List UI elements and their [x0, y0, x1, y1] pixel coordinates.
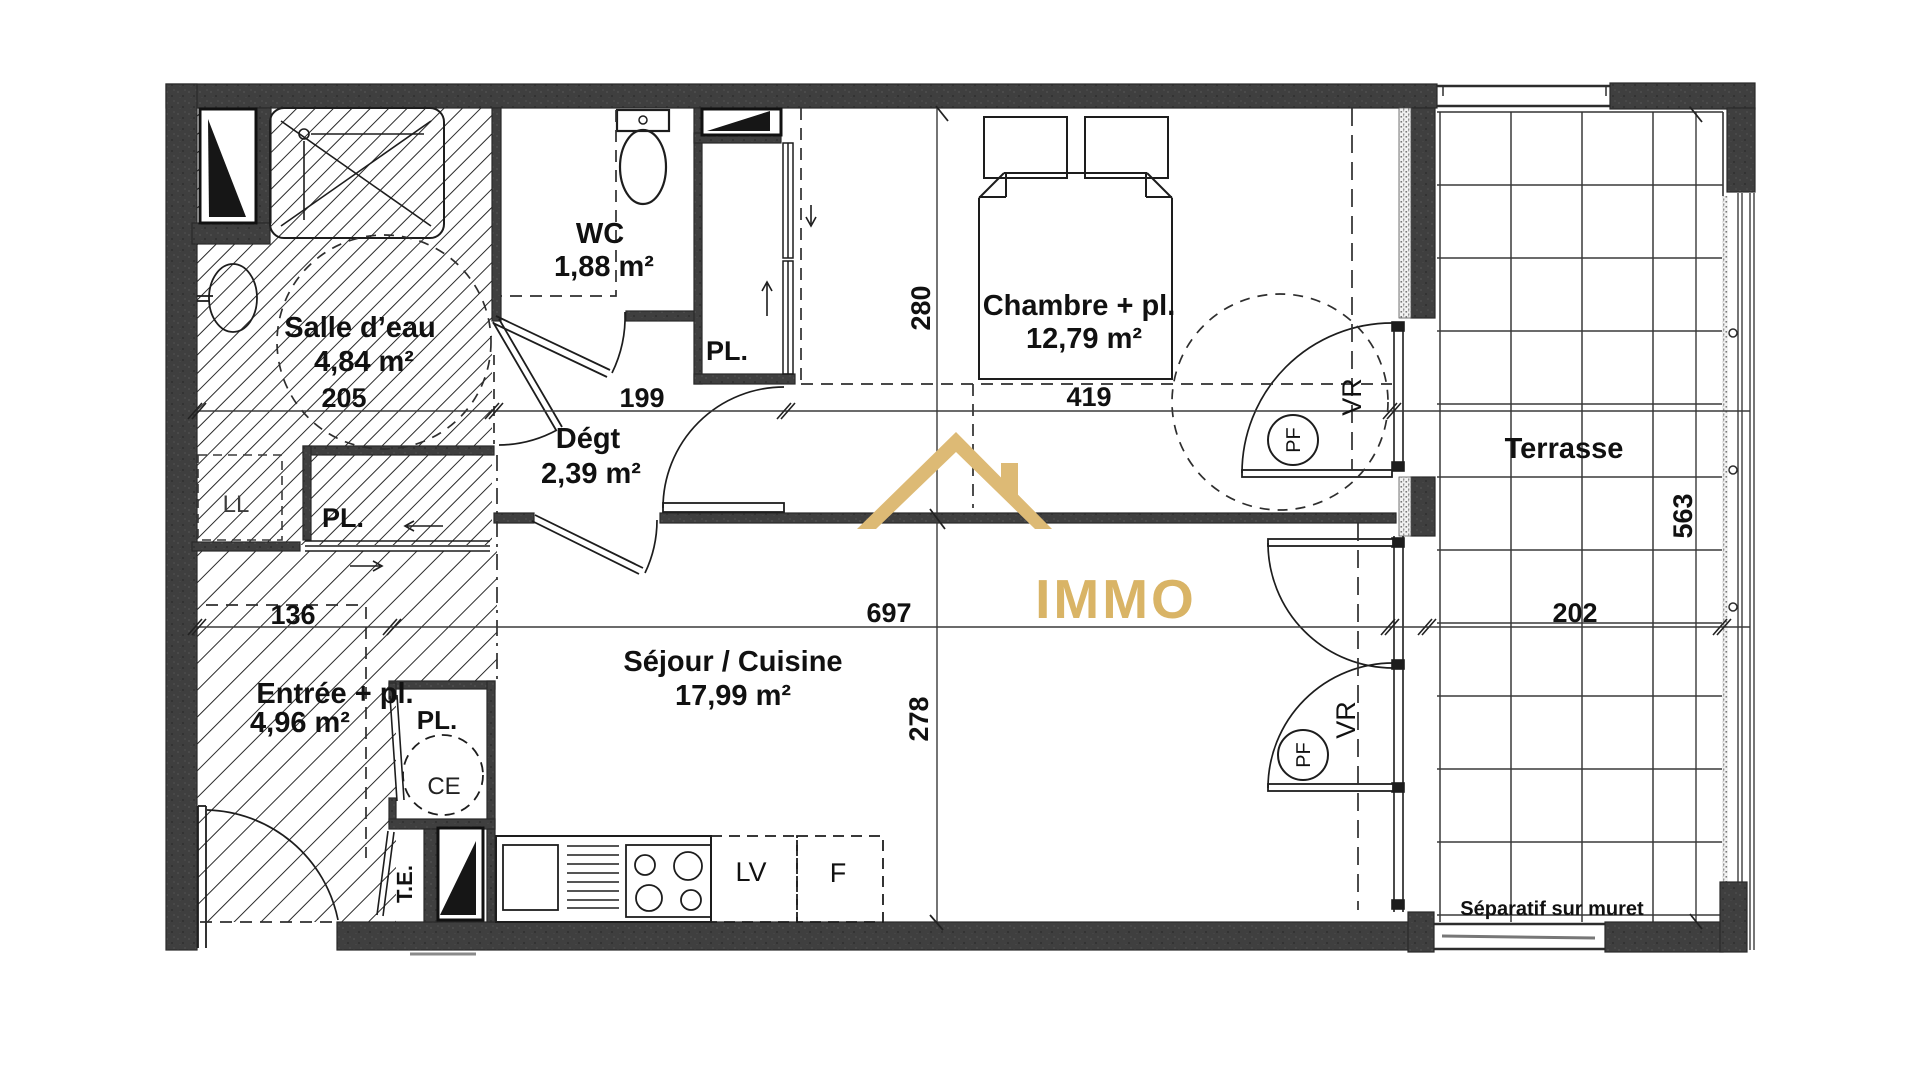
svg-text:VR: VR [1337, 378, 1367, 416]
svg-text:419: 419 [1066, 382, 1111, 412]
svg-text:CE: CE [427, 773, 460, 800]
svg-text:563: 563 [1668, 493, 1698, 538]
svg-text:IMMO: IMMO [1035, 568, 1197, 630]
svg-text:Chambre + pl.: Chambre + pl. [983, 290, 1176, 322]
svg-text:Séparatif sur muret: Séparatif sur muret [1460, 898, 1644, 920]
svg-text:2,39 m²: 2,39 m² [541, 458, 641, 490]
svg-text:PL.: PL. [322, 503, 364, 533]
svg-text:12,79 m²: 12,79 m² [1026, 323, 1142, 355]
svg-text:1,88 m²: 1,88 m² [554, 251, 654, 283]
svg-text:LV: LV [735, 857, 766, 887]
svg-text:F: F [830, 858, 847, 888]
svg-text:Terrasse: Terrasse [1505, 433, 1624, 465]
svg-text:T.E.: T.E. [392, 865, 417, 903]
svg-text:PF: PF [1293, 742, 1315, 768]
svg-text:202: 202 [1552, 598, 1597, 628]
svg-text:Séjour / Cuisine: Séjour / Cuisine [623, 646, 842, 678]
svg-text:136: 136 [270, 600, 315, 630]
svg-text:4,96 m²: 4,96 m² [250, 707, 350, 739]
svg-text:PL.: PL. [417, 705, 457, 735]
svg-text:WC: WC [576, 218, 624, 250]
svg-text:Dégt: Dégt [556, 423, 621, 455]
svg-text:Entrée + pl.: Entrée + pl. [256, 678, 413, 710]
svg-text:4,84 m²: 4,84 m² [314, 346, 414, 378]
svg-text:VR: VR [1331, 701, 1361, 739]
svg-text:Salle d’eau: Salle d’eau [284, 312, 436, 344]
svg-text:697: 697 [866, 598, 911, 628]
svg-text:205: 205 [321, 383, 366, 413]
svg-text:LL: LL [223, 491, 250, 518]
svg-text:199: 199 [619, 383, 664, 413]
svg-text:PL.: PL. [706, 336, 748, 366]
svg-text:17,99 m²: 17,99 m² [675, 680, 791, 712]
svg-text:PF: PF [1283, 427, 1305, 453]
svg-text:278: 278 [904, 696, 934, 741]
svg-text:280: 280 [906, 285, 936, 330]
